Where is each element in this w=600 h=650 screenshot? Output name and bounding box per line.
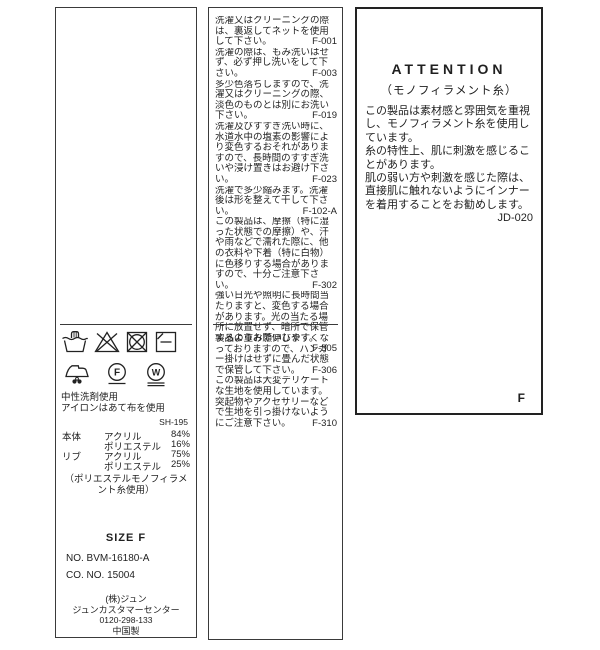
composition-row: ポリエステル 16% bbox=[56, 439, 196, 449]
company-block: (株)ジュン ジュンカスタマーセンター 0120-298-133 中国製 bbox=[56, 594, 196, 636]
care-note-code: F-001 bbox=[312, 37, 337, 48]
care-note: 洗濯の際は、もみ洗いはせず、必ず押し洗いをして下さい。F-003 bbox=[215, 48, 337, 80]
composition-row: リブ アクリル 75% bbox=[56, 449, 196, 459]
care-note: 洗濯及びすすぎ洗い時に、水道水中の塩素の影響により変色するおそれがありますので、… bbox=[215, 122, 337, 186]
customer-center: ジュンカスタマーセンター bbox=[56, 605, 196, 616]
care-note-code: F-003 bbox=[312, 69, 337, 80]
composition-material: ポリエステル bbox=[104, 459, 161, 473]
care-note-code: F-310 bbox=[312, 419, 337, 430]
attention-paragraph-text: 肌の弱い方や刺激を感じた際は、直接肌に触れないようにインナーを着用することをお勧… bbox=[365, 172, 530, 211]
dry-clean-f-icon: F bbox=[104, 362, 130, 387]
care-note: この製品は、摩擦（特に湿った状態での摩擦）や、汗や雨などで濡れた際に、他の衣料や… bbox=[215, 217, 337, 291]
attention-subtitle: （モノフィラメント糸） bbox=[357, 82, 541, 98]
composition-percent: 25% bbox=[171, 459, 190, 470]
care-notes-lower: 製品の重みで伸びやすくなっておりますので、ハンガー掛けはせずに畳んだ状態で保管し… bbox=[215, 334, 337, 429]
care-note-code: F-019 bbox=[312, 111, 337, 122]
hand-wash-icon bbox=[61, 330, 89, 354]
item-number: NO. BVM-16180-A bbox=[66, 553, 149, 564]
ref-code: SH-195 bbox=[159, 417, 188, 427]
phone-number: 0120-298-133 bbox=[56, 615, 196, 626]
size-mark: F bbox=[518, 391, 525, 405]
care-note: 製品の重みで伸びやすくなっておりますので、ハンガー掛けはせずに畳んだ状態で保管し… bbox=[215, 334, 337, 376]
attention-paragraph: 肌の弱い方や刺激を感じた際は、直接肌に触れないようにインナーを着用することをお勧… bbox=[365, 172, 533, 226]
svg-text:F: F bbox=[114, 368, 120, 379]
attention-code: JD-020 bbox=[498, 212, 533, 225]
iron-cloth-note: アイロンはあて布を使用 bbox=[61, 404, 165, 415]
svg-text:W: W bbox=[152, 368, 161, 378]
attention-panel: ATTENTION （モノフィラメント糸） この製品は素材感と雰囲気を重視し、モ… bbox=[355, 7, 543, 415]
care-note-code: F-306 bbox=[312, 366, 337, 377]
care-note-code: F-302 bbox=[312, 281, 337, 292]
wet-clean-w-icon: W bbox=[143, 362, 169, 387]
care-symbols-row-1 bbox=[61, 330, 178, 354]
care-note: 洗濯で多少縮みます。洗濯後は形を整えて干して下さい。F-102-A bbox=[215, 186, 337, 218]
no-bleach-icon bbox=[94, 330, 120, 354]
company-name: (株)ジュン bbox=[56, 594, 196, 605]
divider bbox=[213, 324, 338, 325]
care-notes-panel: 洗濯又はクリーニングの際は、裏返してネットを使用して下さい。F-001 洗濯の際… bbox=[208, 7, 343, 640]
care-note: 多少色落ちしますので、洗濯又はクリーニングの際、淡色のものとは別にお洗い下さい。… bbox=[215, 80, 337, 122]
care-label-sheet: { "colors": { "border": "#3a3a3a", "text… bbox=[0, 0, 600, 650]
composition-row: 本体 アクリル 84% bbox=[56, 429, 196, 439]
composition-note: （ポリエステルモノフィラメント糸使用） bbox=[62, 474, 190, 496]
care-notes-upper: 洗濯又はクリーニングの際は、裏返してネットを使用して下さい。F-001 洗濯の際… bbox=[215, 16, 337, 355]
attention-title: ATTENTION bbox=[357, 61, 541, 77]
divider bbox=[60, 324, 192, 325]
attention-paragraph: この製品は素材感と雰囲気を重視し、モノフィラメント糸を使用しています。 bbox=[365, 105, 533, 145]
care-symbols-row-2: F W bbox=[63, 361, 169, 387]
detergent-note: 中性洗剤使用 bbox=[61, 393, 118, 404]
care-note: この製品は大変デリケートな生地を使用しています。突起物やアクセサリーなどで生地を… bbox=[215, 376, 337, 429]
co-number: CO. NO. 15004 bbox=[66, 570, 135, 581]
attention-paragraph: 糸の特性上、肌に刺激を感じることがあります。 bbox=[365, 145, 533, 172]
care-note-text: この製品は、摩擦（特に湿った状態での摩擦）や、汗や雨などで濡れた際に、他の衣料や… bbox=[215, 217, 329, 291]
composition-row: ポリエステル 25% bbox=[56, 459, 196, 469]
composition-label-panel: F W 中性洗剤使用 アイロンはあて布を使用 SH-195 本体 アクリル 84… bbox=[55, 7, 197, 638]
no-tumble-dry-icon bbox=[125, 330, 149, 354]
country-of-origin: 中国製 bbox=[56, 626, 196, 637]
size-label: SIZE F bbox=[56, 532, 196, 544]
care-note-code: F-102-A bbox=[303, 207, 337, 218]
shade-flat-dry-icon bbox=[154, 330, 178, 354]
iron-with-cloth-icon bbox=[63, 361, 91, 387]
care-note-code: F-023 bbox=[312, 175, 337, 186]
attention-body: この製品は素材感と雰囲気を重視し、モノフィラメント糸を使用しています。 糸の特性… bbox=[365, 105, 533, 226]
care-note: 洗濯又はクリーニングの際は、裏返してネットを使用して下さい。F-001 bbox=[215, 16, 337, 48]
